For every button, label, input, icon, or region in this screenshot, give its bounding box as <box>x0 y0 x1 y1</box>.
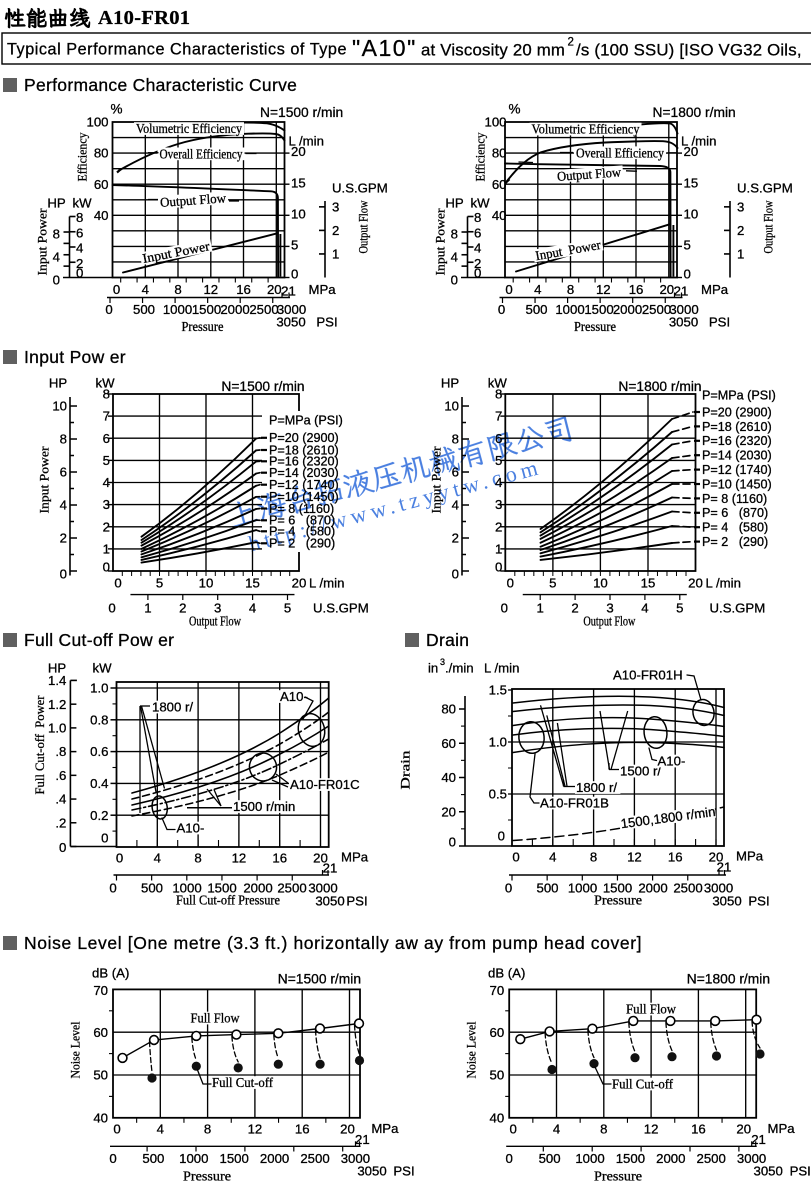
svg-text:Performance Characteristic Cur: Performance Characteristic Curve <box>24 75 297 95</box>
svg-text:in: in <box>428 661 438 676</box>
svg-text:40: 40 <box>490 1110 505 1125</box>
svg-text:Overall Efficiency: Overall Efficiency <box>160 146 243 161</box>
svg-text:Drain: Drain <box>426 630 469 650</box>
svg-text:4: 4 <box>534 282 541 297</box>
svg-text:8: 8 <box>76 210 83 225</box>
svg-text:4: 4 <box>641 601 648 616</box>
svg-text:10: 10 <box>444 399 459 414</box>
svg-text:6: 6 <box>60 465 67 480</box>
svg-text:3050: 3050 <box>276 315 305 330</box>
svg-text:3050: 3050 <box>712 894 741 909</box>
svg-text:Output Flow: Output Flow <box>356 200 371 253</box>
svg-text:21: 21 <box>323 861 338 876</box>
svg-text:L /min: L /min <box>484 661 519 676</box>
svg-text:0: 0 <box>512 850 519 865</box>
svg-text:Output Flow: Output Flow <box>189 614 241 629</box>
svg-text:2000: 2000 <box>260 1151 289 1166</box>
svg-text:1500 r/: 1500 r/ <box>620 764 661 779</box>
svg-text:1.0: 1.0 <box>48 721 66 736</box>
svg-text:A10-FR01C: A10-FR01C <box>290 777 360 792</box>
svg-text:0.4: 0.4 <box>90 776 108 791</box>
svg-text:4: 4 <box>549 850 556 865</box>
svg-text:0: 0 <box>452 567 459 582</box>
svg-text:1500: 1500 <box>616 1151 645 1166</box>
svg-text:P= 6 (870): P= 6 (870) <box>702 506 768 520</box>
svg-text:Full Flow: Full Flow <box>626 1002 676 1017</box>
svg-text:2000: 2000 <box>613 302 642 317</box>
svg-text:U.S.GPM: U.S.GPM <box>332 181 388 196</box>
svg-text:60: 60 <box>441 736 456 751</box>
svg-text:3050: 3050 <box>357 1164 386 1179</box>
svg-text:Input Power: Input Power <box>37 446 52 514</box>
svg-text:8: 8 <box>474 210 481 225</box>
svg-text:0: 0 <box>507 576 514 591</box>
svg-text:MPa: MPa <box>308 282 336 297</box>
svg-text:1000: 1000 <box>179 1151 208 1166</box>
svg-text:6: 6 <box>76 225 83 240</box>
svg-text:8: 8 <box>451 227 458 242</box>
svg-text:5: 5 <box>549 576 556 591</box>
svg-text:0: 0 <box>60 567 67 582</box>
svg-text:0: 0 <box>684 267 691 282</box>
svg-text:4: 4 <box>53 250 60 265</box>
svg-text:2500: 2500 <box>642 302 671 317</box>
svg-text:50: 50 <box>93 1068 108 1083</box>
svg-text:80: 80 <box>94 146 109 161</box>
svg-text:Volumetric Efficiency: Volumetric Efficiency <box>532 122 640 137</box>
svg-text:5: 5 <box>676 601 683 616</box>
svg-text:8: 8 <box>174 282 181 297</box>
svg-text:P=14 (2030): P=14 (2030) <box>702 449 772 463</box>
svg-text:500: 500 <box>142 1151 164 1166</box>
svg-text:0: 0 <box>291 267 298 282</box>
svg-text:A10-: A10- <box>280 689 308 704</box>
svg-text:12: 12 <box>644 1122 659 1137</box>
svg-text:40: 40 <box>93 1110 108 1125</box>
svg-text:5: 5 <box>156 576 163 591</box>
svg-text:0: 0 <box>113 282 120 297</box>
svg-text:U.S.GPM: U.S.GPM <box>710 601 766 616</box>
svg-text:1800 r/: 1800 r/ <box>152 700 193 715</box>
svg-text:PSI: PSI <box>393 1164 414 1179</box>
svg-text:PSI: PSI <box>790 1164 811 1179</box>
svg-text:Full Cut-off: Full Cut-off <box>212 1075 274 1090</box>
svg-text:HP: HP <box>445 196 464 211</box>
svg-text:P=16 (2320): P=16 (2320) <box>702 434 772 448</box>
svg-text:500: 500 <box>539 1151 561 1166</box>
svg-text:Pressure: Pressure <box>574 319 616 334</box>
svg-text:N=1800 r/min: N=1800 r/min <box>653 105 736 120</box>
svg-text:HP: HP <box>441 376 460 391</box>
svg-text:A10-FR01H: A10-FR01H <box>613 668 683 683</box>
svg-text:5: 5 <box>291 238 298 253</box>
svg-text:20: 20 <box>291 144 306 159</box>
svg-text:60: 60 <box>93 1025 108 1040</box>
svg-text:P=18 (2610): P=18 (2610) <box>702 420 772 434</box>
svg-text:Pressure: Pressure <box>594 1169 642 1184</box>
svg-text:U.S.GPM: U.S.GPM <box>313 601 369 616</box>
svg-text:0.5: 0.5 <box>489 787 507 802</box>
svg-text:1500 r/min: 1500 r/min <box>233 799 295 814</box>
svg-text:P=MPa (PSI): P=MPa (PSI) <box>702 389 776 403</box>
svg-text:Noise Level [One metre (3.3 ft: Noise Level [One metre (3.3 ft.) horizon… <box>24 933 642 953</box>
svg-text:0: 0 <box>510 1122 517 1137</box>
svg-text:60: 60 <box>94 177 109 192</box>
svg-text:0.8: 0.8 <box>90 712 108 727</box>
svg-text:L /min: L /min <box>309 576 344 591</box>
svg-text:70: 70 <box>490 983 505 998</box>
svg-text:P= 2 (290): P= 2 (290) <box>702 535 768 549</box>
svg-text:20: 20 <box>688 576 703 591</box>
svg-text:0.2: 0.2 <box>90 808 108 823</box>
svg-text:A10-FR01B: A10-FR01B <box>540 796 609 811</box>
svg-text:1500: 1500 <box>220 1151 249 1166</box>
svg-text:2000: 2000 <box>656 1151 685 1166</box>
svg-text:N=1500 r/min: N=1500 r/min <box>221 379 304 394</box>
svg-text:P=20 (2900): P=20 (2900) <box>702 405 772 419</box>
svg-text:100: 100 <box>86 115 108 130</box>
svg-text:4: 4 <box>154 851 161 866</box>
svg-text:Input Pow er: Input Pow er <box>24 347 126 367</box>
svg-text:4: 4 <box>142 282 149 297</box>
svg-text:1000: 1000 <box>575 1151 604 1166</box>
svg-text:Input Power: Input Power <box>433 208 448 276</box>
svg-text:0: 0 <box>474 266 481 281</box>
svg-text:40: 40 <box>441 770 456 785</box>
svg-text:2: 2 <box>568 37 574 49</box>
svg-text:20: 20 <box>684 144 699 159</box>
svg-text:1: 1 <box>332 247 339 262</box>
svg-text:Volumetric Efficiency: Volumetric Efficiency <box>136 121 242 136</box>
svg-text:0: 0 <box>505 282 512 297</box>
svg-text:.8: .8 <box>55 744 66 759</box>
svg-text:P=10 (1450): P=10 (1450) <box>702 477 772 491</box>
svg-text:PSI: PSI <box>748 894 769 909</box>
svg-text:0: 0 <box>103 560 110 575</box>
svg-text:1000: 1000 <box>568 881 597 896</box>
svg-text:100: 100 <box>484 115 506 130</box>
svg-text:8: 8 <box>590 850 597 865</box>
svg-text:10: 10 <box>593 576 608 591</box>
svg-text:2500: 2500 <box>249 302 278 317</box>
svg-text:4: 4 <box>249 601 256 616</box>
svg-text:MPa: MPa <box>736 849 764 864</box>
svg-text:A10-: A10- <box>177 821 205 836</box>
svg-text:Full Cut-off Pow er: Full Cut-off Pow er <box>24 630 174 650</box>
svg-text:21: 21 <box>355 1132 370 1147</box>
svg-text:0: 0 <box>114 576 121 591</box>
svg-text:PSI: PSI <box>346 894 367 909</box>
svg-text:Pressure: Pressure <box>183 1169 231 1184</box>
svg-text:Pressure: Pressure <box>594 893 642 908</box>
svg-text:2500: 2500 <box>300 1151 329 1166</box>
svg-text:0: 0 <box>495 560 502 575</box>
svg-text:Full Flow: Full Flow <box>191 1011 240 1026</box>
svg-text:1.4: 1.4 <box>48 673 66 688</box>
svg-text:15: 15 <box>641 576 656 591</box>
svg-text:50: 50 <box>490 1068 505 1083</box>
svg-text:15: 15 <box>291 175 306 190</box>
svg-text:P=12 (1740): P=12 (1740) <box>702 463 772 477</box>
svg-text:4: 4 <box>474 241 481 256</box>
svg-text:N=1500 r/min: N=1500 r/min <box>260 105 343 120</box>
svg-text:kW: kW <box>72 196 92 211</box>
svg-text:8: 8 <box>204 1122 211 1137</box>
svg-text:2500: 2500 <box>697 1151 726 1166</box>
svg-text:8: 8 <box>600 1122 607 1137</box>
svg-text:PSI: PSI <box>709 315 730 330</box>
svg-text:"A10": "A10" <box>352 35 417 61</box>
svg-text:20: 20 <box>267 282 282 297</box>
svg-text:2500: 2500 <box>277 881 306 896</box>
svg-text:2: 2 <box>737 223 744 238</box>
svg-text:1000: 1000 <box>163 302 192 317</box>
svg-text:U.S.GPM: U.S.GPM <box>737 181 793 196</box>
svg-text:2500: 2500 <box>673 881 702 896</box>
svg-text:0: 0 <box>101 831 108 846</box>
svg-text:2: 2 <box>179 601 186 616</box>
svg-text:2: 2 <box>332 223 339 238</box>
svg-text:80: 80 <box>441 702 456 717</box>
svg-text:500: 500 <box>133 302 155 317</box>
svg-text:500: 500 <box>536 881 558 896</box>
svg-text:20: 20 <box>292 576 307 591</box>
svg-text:12: 12 <box>232 851 247 866</box>
svg-text:4: 4 <box>76 241 83 256</box>
svg-text:0: 0 <box>105 302 112 317</box>
svg-text:1.0: 1.0 <box>489 735 507 750</box>
svg-text:16: 16 <box>295 1122 310 1137</box>
svg-text:P= 4 (580): P= 4 (580) <box>702 521 768 535</box>
svg-text:PSI: PSI <box>316 315 337 330</box>
svg-text:16: 16 <box>272 851 287 866</box>
svg-text:8: 8 <box>194 851 201 866</box>
svg-text:Efficiency: Efficiency <box>75 132 90 181</box>
svg-text:500: 500 <box>141 881 163 896</box>
svg-text:0: 0 <box>53 273 60 288</box>
svg-text:40: 40 <box>94 208 109 223</box>
svg-text:Typical Performance Characteri: Typical Performance Characteristics of T… <box>7 41 347 59</box>
svg-text:2000: 2000 <box>638 881 667 896</box>
svg-text:3: 3 <box>332 199 339 214</box>
svg-text:20: 20 <box>736 1122 751 1137</box>
svg-text:P= 8 (1160): P= 8 (1160) <box>702 492 767 506</box>
svg-text:A10-FR01: A10-FR01 <box>98 7 190 29</box>
svg-text:3050: 3050 <box>315 894 344 909</box>
svg-text:A10-: A10- <box>658 754 686 769</box>
svg-text:4: 4 <box>60 498 67 513</box>
svg-text:20: 20 <box>441 804 456 819</box>
svg-text:12: 12 <box>203 282 218 297</box>
svg-text:N=1500 r/min: N=1500 r/min <box>278 971 361 986</box>
svg-text:./min: ./min <box>445 661 474 676</box>
svg-text:1500: 1500 <box>584 302 613 317</box>
svg-text:.2: .2 <box>55 815 66 830</box>
svg-text:6: 6 <box>474 225 481 240</box>
svg-text:4: 4 <box>451 250 458 265</box>
svg-text:10: 10 <box>52 399 67 414</box>
svg-text:16: 16 <box>691 1122 706 1137</box>
svg-text:16: 16 <box>629 282 644 297</box>
svg-text:Overall Efficiency: Overall Efficiency <box>576 145 664 160</box>
svg-text:20: 20 <box>659 282 674 297</box>
svg-text:Noise Level: Noise Level <box>464 1021 479 1078</box>
svg-text:1800 r/: 1800 r/ <box>576 780 617 795</box>
svg-text:Drain: Drain <box>398 750 413 790</box>
svg-text:4: 4 <box>553 1122 560 1137</box>
svg-text:dB (A): dB (A) <box>488 966 525 981</box>
svg-text:10: 10 <box>684 206 699 221</box>
svg-text:2: 2 <box>452 531 459 546</box>
svg-text:%: % <box>111 102 123 117</box>
svg-text:0: 0 <box>109 1151 116 1166</box>
svg-text:3050: 3050 <box>669 315 698 330</box>
svg-text:0: 0 <box>116 851 123 866</box>
svg-text:15: 15 <box>245 576 260 591</box>
svg-text:0: 0 <box>506 1151 513 1166</box>
svg-text:MPa: MPa <box>341 850 369 865</box>
svg-text:60: 60 <box>492 177 507 192</box>
svg-text:HP: HP <box>49 376 68 391</box>
svg-text:20: 20 <box>340 1122 355 1137</box>
svg-text:at Viscosity 20 mm: at Viscosity 20 mm <box>421 40 565 59</box>
svg-text:12: 12 <box>248 1122 263 1137</box>
svg-text:0: 0 <box>113 1122 120 1137</box>
svg-text:0.6: 0.6 <box>90 744 108 759</box>
svg-text:3: 3 <box>737 199 744 214</box>
svg-text:.6: .6 <box>55 768 66 783</box>
svg-text:kW: kW <box>92 661 112 676</box>
svg-text:0: 0 <box>449 835 456 850</box>
svg-text:1: 1 <box>144 601 151 616</box>
svg-text:1000: 1000 <box>555 302 584 317</box>
svg-text:5: 5 <box>684 238 691 253</box>
svg-text:Full Cut-off Power: Full Cut-off Power <box>32 695 47 795</box>
svg-text:Full Cut-off Pressure: Full Cut-off Pressure <box>176 893 280 908</box>
svg-text:15: 15 <box>684 175 699 190</box>
svg-text:8: 8 <box>60 432 67 447</box>
svg-text:60: 60 <box>490 1025 505 1040</box>
svg-text:16: 16 <box>668 850 683 865</box>
svg-text:2000: 2000 <box>220 302 249 317</box>
svg-text:12: 12 <box>627 850 642 865</box>
svg-text:N=1800 r/min: N=1800 r/min <box>687 971 770 986</box>
svg-text:2: 2 <box>571 601 578 616</box>
svg-text:5: 5 <box>284 601 291 616</box>
svg-text:16: 16 <box>236 282 251 297</box>
svg-text:70: 70 <box>93 983 108 998</box>
svg-text:8: 8 <box>567 282 574 297</box>
svg-text:/s (100 SSU) [ISO VG32 Oils,: /s (100 SSU) [ISO VG32 Oils, <box>576 40 802 59</box>
svg-text:MPa: MPa <box>768 1121 796 1136</box>
svg-text:1.5: 1.5 <box>489 683 507 698</box>
svg-text:Output Flow: Output Flow <box>761 200 776 253</box>
svg-text:0: 0 <box>109 881 116 896</box>
svg-text:2: 2 <box>60 531 67 546</box>
svg-text:0: 0 <box>108 601 115 616</box>
svg-text:21: 21 <box>751 1132 766 1147</box>
svg-text:MPa: MPa <box>371 1121 399 1136</box>
svg-text:N=1800 r/min: N=1800 r/min <box>618 379 701 394</box>
svg-text:MPa: MPa <box>701 282 729 297</box>
svg-text:10: 10 <box>291 206 306 221</box>
svg-text:L /min: L /min <box>706 576 741 591</box>
svg-text:kW: kW <box>470 196 490 211</box>
svg-text:500: 500 <box>525 302 547 317</box>
svg-text:0: 0 <box>498 829 505 844</box>
svg-text:8: 8 <box>452 432 459 447</box>
svg-text:0: 0 <box>76 266 83 281</box>
svg-text:1: 1 <box>737 247 744 262</box>
svg-text:10: 10 <box>199 576 214 591</box>
svg-text:80: 80 <box>492 146 507 161</box>
svg-text:3050: 3050 <box>754 1164 783 1179</box>
svg-text:0: 0 <box>505 881 512 896</box>
svg-text:Noise Level: Noise Level <box>68 1021 83 1078</box>
svg-text:1.0: 1.0 <box>90 681 108 696</box>
svg-text:dB (A): dB (A) <box>92 966 129 981</box>
svg-text:40: 40 <box>492 208 507 223</box>
svg-text:0: 0 <box>501 601 508 616</box>
svg-text:1: 1 <box>537 601 544 616</box>
svg-text:Pressure: Pressure <box>182 319 224 334</box>
svg-text:1.2: 1.2 <box>48 697 66 712</box>
svg-text:1500: 1500 <box>192 302 221 317</box>
svg-text:Full Cut-off: Full Cut-off <box>612 1077 674 1092</box>
svg-text:.4: .4 <box>55 792 66 807</box>
svg-text:0: 0 <box>59 840 66 855</box>
svg-text:HP: HP <box>47 196 66 211</box>
svg-text:0: 0 <box>451 273 458 288</box>
svg-text:Output Flow: Output Flow <box>583 614 635 629</box>
svg-text:P=MPa (PSI): P=MPa (PSI) <box>269 413 343 427</box>
svg-text:Input Power: Input Power <box>35 208 50 276</box>
svg-text:Efficiency: Efficiency <box>473 132 488 181</box>
svg-text:4: 4 <box>157 1122 164 1137</box>
svg-text:0: 0 <box>498 302 505 317</box>
svg-text:12: 12 <box>596 282 611 297</box>
svg-text:%: % <box>509 102 521 117</box>
svg-text:8: 8 <box>53 227 60 242</box>
